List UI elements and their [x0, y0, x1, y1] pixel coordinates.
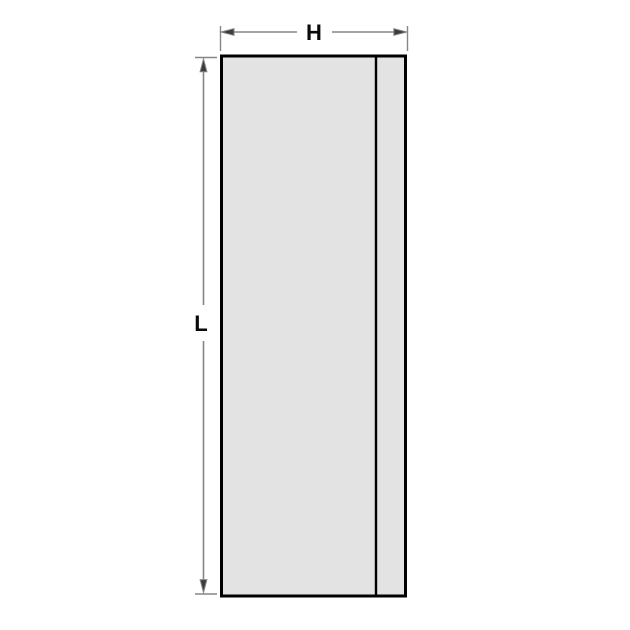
plate-body [222, 56, 406, 596]
h-dimension-label: H [306, 20, 322, 45]
plate [222, 56, 406, 596]
dimension-drawing: H L [0, 0, 630, 630]
l-dimension-label: L [194, 311, 207, 336]
dimension-drawing-stage: H L [0, 0, 630, 630]
